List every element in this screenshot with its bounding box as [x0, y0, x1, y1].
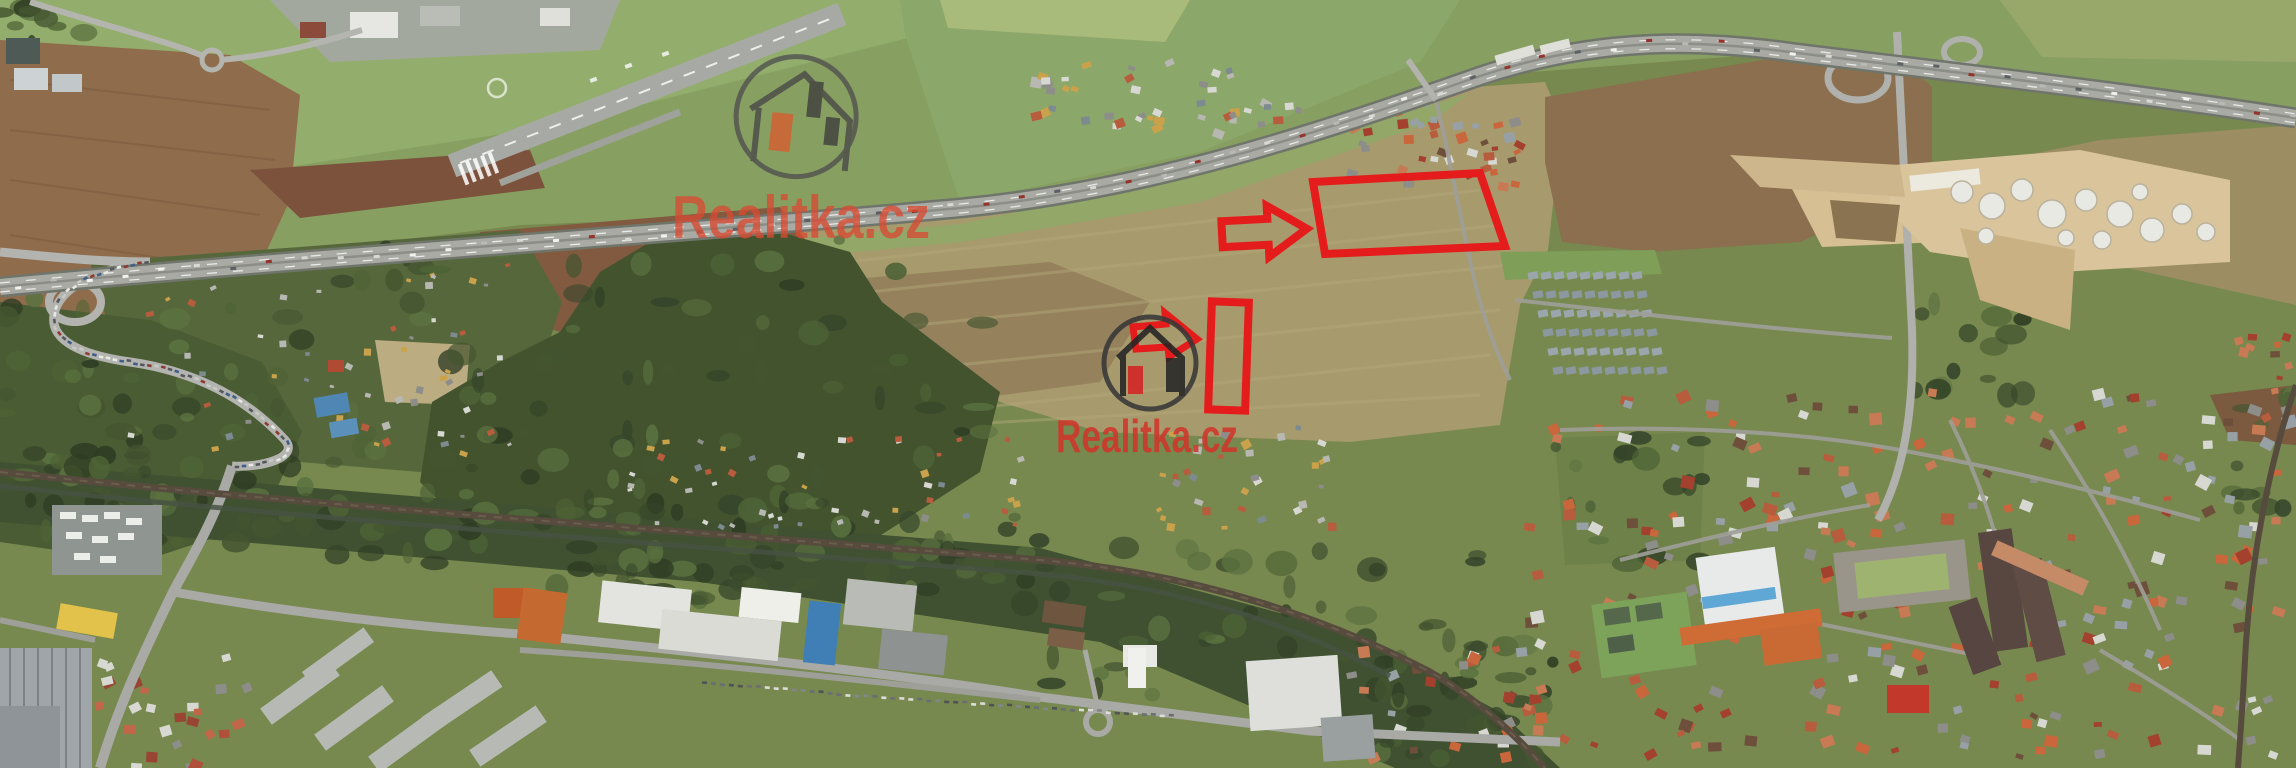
airport-building-3 [540, 8, 570, 26]
greenhouse-2 [52, 74, 82, 92]
chimney-accent [1128, 366, 1143, 394]
chimney-accent [768, 112, 793, 152]
field-topright [2000, 0, 2296, 62]
chimney-dark [1166, 358, 1180, 392]
pond [6, 38, 40, 64]
airport-building [420, 6, 460, 26]
industrial-halls [0, 648, 92, 768]
red-gable-house [1887, 685, 1929, 713]
greenhouse [14, 68, 48, 90]
watermark-text: Realitka.cz [672, 184, 930, 251]
chimney-dark-2 [823, 117, 840, 146]
aerial-photo: Realitka.cz Realitka.cz [0, 0, 2296, 768]
watermark-text: Realitka.cz [1056, 410, 1238, 462]
orange-building [493, 588, 523, 618]
airport-building-2 [300, 22, 326, 38]
